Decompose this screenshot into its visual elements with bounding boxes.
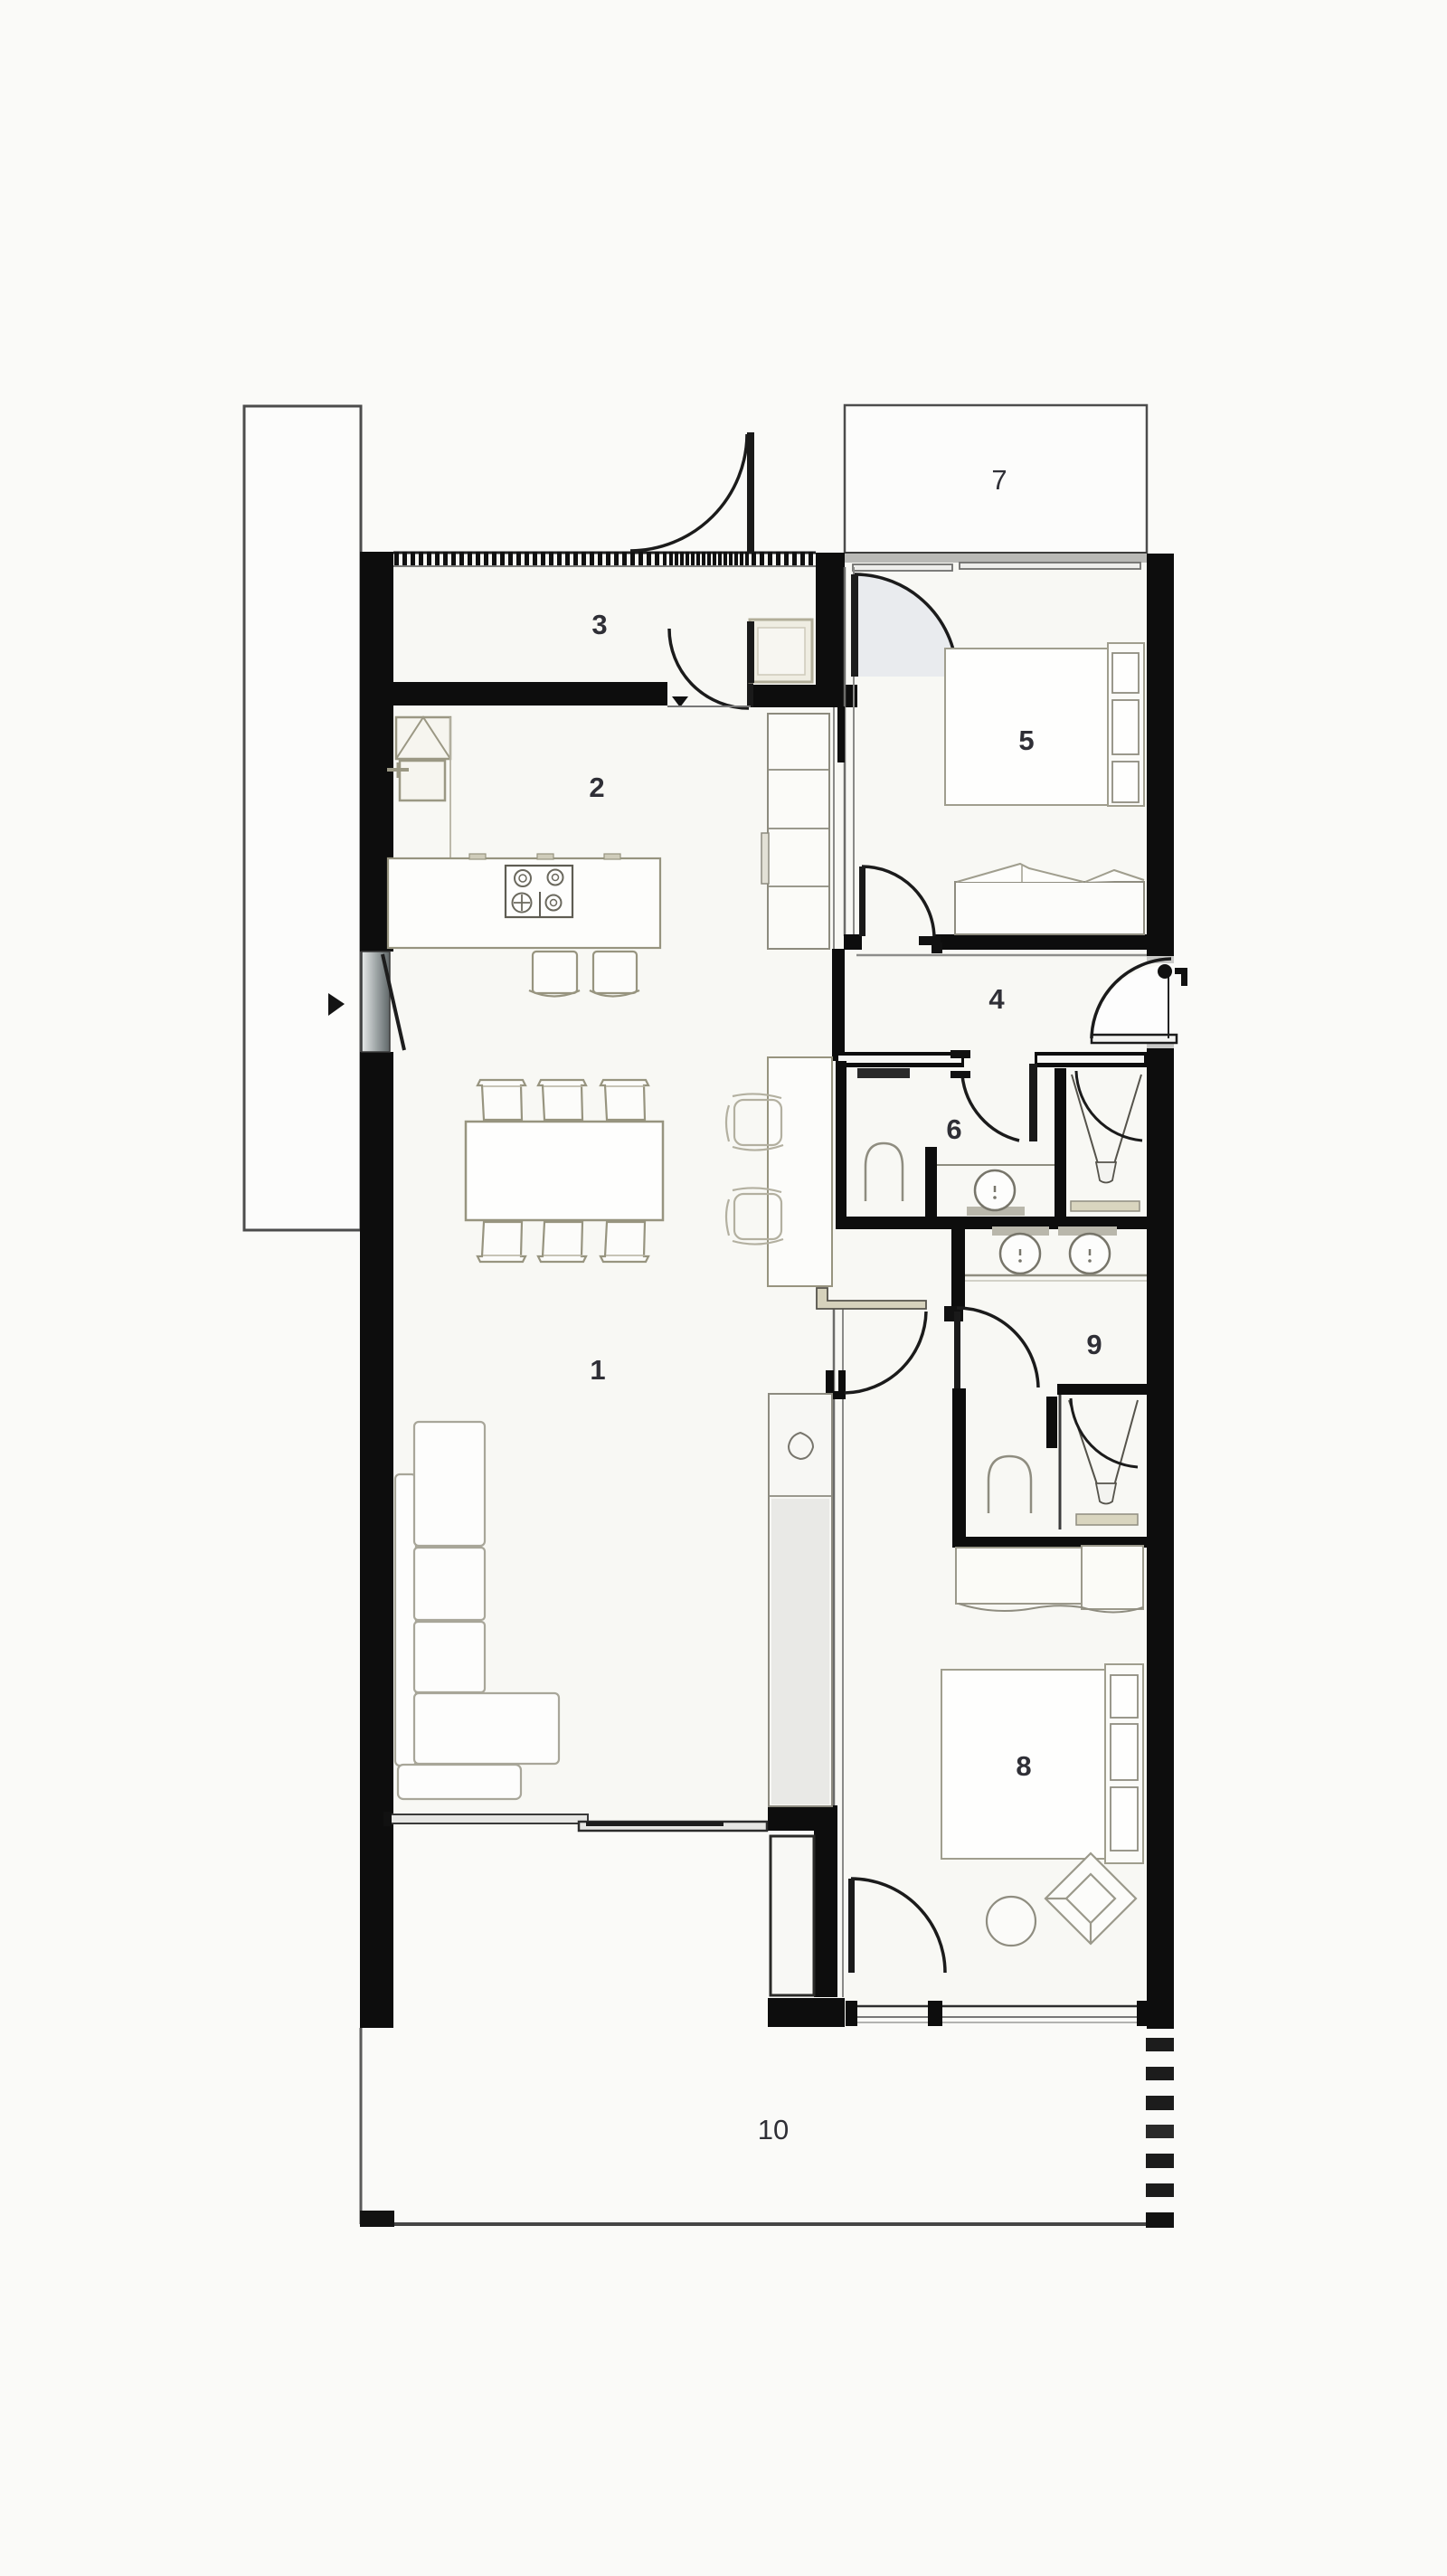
svg-text:7: 7 (991, 464, 1007, 496)
svg-text:9: 9 (1086, 1329, 1102, 1360)
svg-text:1: 1 (590, 1354, 605, 1386)
svg-text:2: 2 (589, 772, 604, 803)
svg-text:4: 4 (988, 983, 1005, 1015)
svg-text:6: 6 (946, 1113, 961, 1145)
svg-text:5: 5 (1018, 724, 1034, 756)
svg-text:8: 8 (1016, 1750, 1031, 1782)
svg-text:3: 3 (591, 609, 607, 640)
svg-text:10: 10 (758, 2114, 789, 2145)
